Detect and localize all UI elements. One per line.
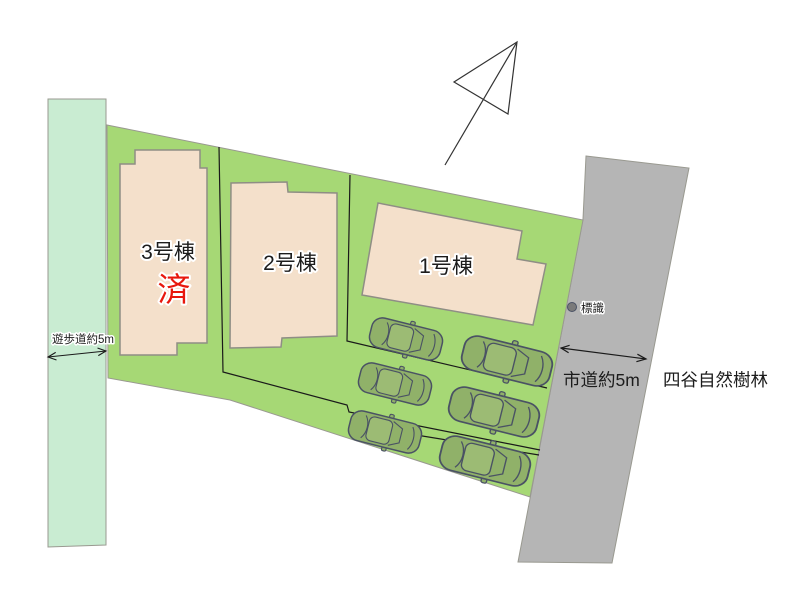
site-plan-canvas: 3号棟 済 2号棟 1号棟 遊歩道約5m 標識 市道約5m 四谷自然樹林	[0, 0, 800, 600]
sold-badge: 済	[158, 271, 191, 308]
walkway-label: 遊歩道約5m	[52, 332, 114, 346]
sign-dot-icon	[568, 303, 577, 312]
north-arrow-icon	[445, 42, 517, 165]
sign-label: 標識	[581, 301, 604, 315]
walkway-strip	[48, 99, 106, 547]
building-2-label: 2号棟	[263, 252, 317, 275]
building-1-label: 1号棟	[419, 255, 473, 278]
site-plan: 3号棟 済 2号棟 1号棟 遊歩道約5m 標識 市道約5m 四谷自然樹林	[0, 0, 800, 600]
road-label: 市道約5m	[563, 370, 640, 390]
building-3-label: 3号棟	[141, 241, 195, 264]
forest-label: 四谷自然樹林	[663, 370, 768, 390]
